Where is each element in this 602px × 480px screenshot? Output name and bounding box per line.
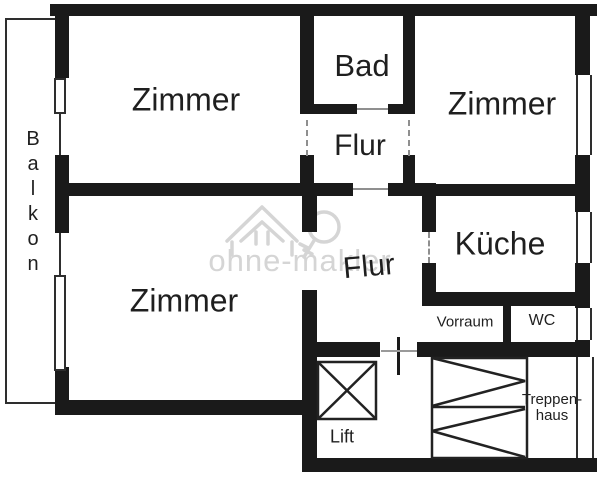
floor-plan: ohne-makler	[0, 0, 602, 480]
wall-bad-bottom	[388, 104, 415, 114]
wall-left	[55, 16, 69, 78]
door-symbol	[428, 232, 430, 263]
entrance-door-symbol	[397, 337, 400, 375]
lift-x-icon	[316, 360, 378, 421]
stairs-icon	[430, 356, 530, 460]
room-label-kueche: Küche	[455, 226, 546, 263]
window-symbol	[576, 212, 592, 263]
room-label-bad: Bad	[334, 48, 389, 84]
door-symbol	[408, 120, 410, 156]
balcony-door-leaf	[54, 275, 66, 371]
door-symbol	[353, 188, 388, 190]
room-label-flur-lower: Flur	[342, 248, 396, 286]
wall-entry	[317, 342, 380, 357]
wall-right	[575, 16, 590, 75]
wall-right	[575, 155, 590, 212]
wall-bottom-left-room	[55, 400, 317, 415]
room-label-lift: Lift	[330, 427, 354, 448]
room-label-balkon: Balkon	[21, 128, 44, 278]
window-symbol	[576, 75, 592, 155]
door-symbol	[357, 108, 388, 110]
wall-stairwell-left	[302, 290, 317, 472]
wall-top	[50, 4, 597, 16]
wall-flur-column-left	[300, 155, 314, 196]
room-label-zimmer-top-right: Zimmer	[448, 86, 556, 123]
wall-kueche-bottom	[422, 292, 590, 306]
wall-zimmer-kueche-divider	[415, 184, 575, 196]
balcony-door-leaf	[54, 78, 66, 114]
window-symbol	[576, 308, 592, 340]
wall-flur-column-right	[403, 16, 415, 104]
room-label-wc: WC	[529, 312, 556, 330]
room-label-flur-upper: Flur	[334, 129, 386, 163]
door-symbol	[306, 120, 308, 156]
wall-stairwell-bottom	[302, 458, 597, 472]
wall-bad-bottom	[300, 104, 357, 114]
room-label-vorraum: Vorraum	[437, 314, 494, 331]
room-label-zimmer-top-left: Zimmer	[132, 82, 240, 119]
room-label-treppenhaus: Treppen- haus	[522, 392, 582, 424]
wall-lower-flur-left	[302, 195, 317, 232]
wall-kueche-left	[422, 190, 436, 232]
wall-flur-column-left	[300, 16, 314, 104]
entry-threshold-line	[381, 350, 417, 352]
room-label-zimmer-bottom-left: Zimmer	[130, 283, 238, 320]
wall-flur-column-right	[403, 155, 415, 196]
wall-entry	[417, 342, 590, 357]
